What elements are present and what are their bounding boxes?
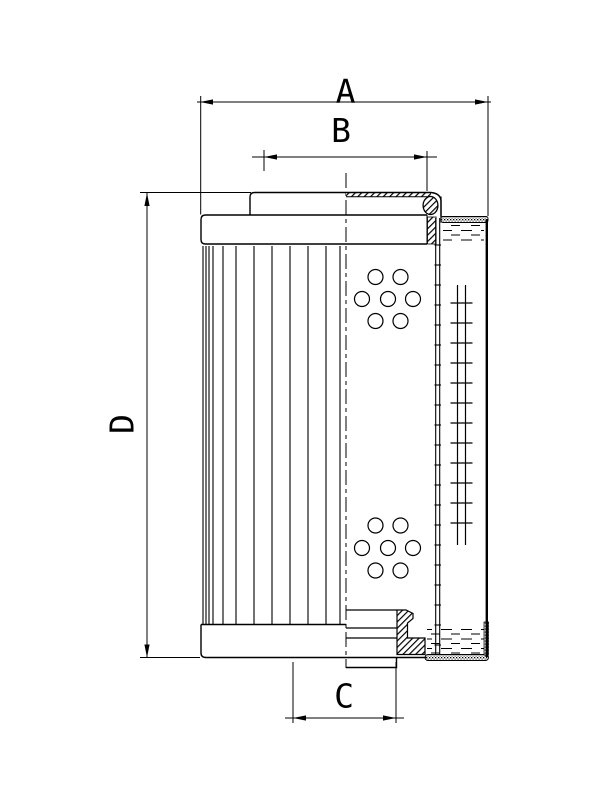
top-flange-outline bbox=[201, 215, 427, 244]
dim-c-arrow-left bbox=[293, 715, 306, 720]
bottom-cap-outline bbox=[201, 625, 427, 658]
bottom-center-boss bbox=[346, 658, 397, 668]
shell-rim-top bbox=[441, 217, 488, 223]
bypass-spring bbox=[451, 285, 473, 545]
bottom-seal-block bbox=[397, 610, 425, 655]
perforation-hole bbox=[393, 270, 408, 285]
perforation-hole bbox=[381, 541, 396, 556]
perforation-hole bbox=[406, 541, 421, 556]
dimension-label-d: D bbox=[103, 414, 142, 434]
perforation-hole bbox=[368, 314, 383, 329]
outer-shell bbox=[425, 217, 489, 661]
perforation-hole bbox=[368, 270, 383, 285]
pleated-filter-media bbox=[203, 246, 340, 624]
cap-skirt-section-hatch bbox=[428, 217, 437, 244]
filter-element-technical-drawing: A B D C bbox=[0, 0, 612, 792]
dimension-label-c: C bbox=[334, 677, 354, 716]
perforation-holes-bottom bbox=[355, 518, 421, 578]
dim-b-arrow-right bbox=[414, 154, 427, 159]
perforation-hole bbox=[381, 292, 396, 307]
dim-d-arrow-top bbox=[144, 193, 149, 206]
perforation-hole bbox=[393, 314, 408, 329]
dim-a-arrow-left bbox=[200, 99, 213, 104]
perforation-hole bbox=[368, 563, 383, 578]
dim-b-arrow-left bbox=[264, 154, 277, 159]
dim-a-arrow-right bbox=[475, 99, 488, 104]
inner-core-tube bbox=[435, 218, 442, 655]
o-ring-seal bbox=[423, 197, 438, 215]
potting-gasket-top bbox=[443, 223, 484, 244]
shell-rim-bottom bbox=[425, 655, 489, 661]
perforation-hole bbox=[355, 292, 370, 307]
dimension-label-b: B bbox=[331, 111, 351, 150]
perforation-hole bbox=[355, 541, 370, 556]
dimension-label-a: A bbox=[336, 72, 356, 111]
perforation-hole bbox=[393, 518, 408, 533]
bottom-end-cap bbox=[201, 610, 427, 668]
perforation-hole bbox=[406, 292, 421, 307]
perforation-hole bbox=[368, 518, 383, 533]
perforation-hole bbox=[393, 563, 408, 578]
dim-d-arrow-bottom bbox=[144, 645, 149, 658]
top-end-cap bbox=[201, 193, 441, 245]
dimension-c: C bbox=[285, 662, 404, 723]
dimension-d: D bbox=[103, 193, 252, 658]
dim-c-arrow-right bbox=[383, 715, 396, 720]
perforation-holes-top bbox=[355, 270, 421, 329]
dimension-b: B bbox=[252, 111, 437, 191]
